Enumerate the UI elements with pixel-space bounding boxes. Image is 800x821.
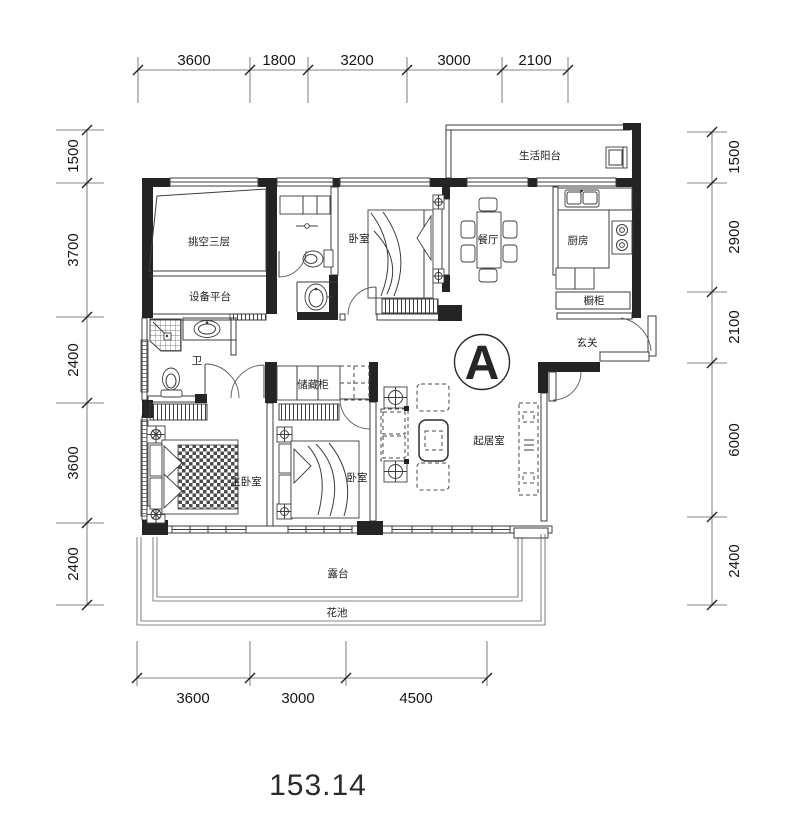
dim-right-4: 6000: [726, 423, 743, 456]
dim-left-2: 3700: [65, 233, 82, 266]
shower-icon: [150, 319, 181, 351]
tv-cabinet: [519, 403, 538, 495]
dim-right-3: 2100: [726, 310, 743, 343]
room-label-cabinet: 橱柜: [584, 294, 605, 307]
dim-top-2: 1800: [262, 52, 295, 69]
void-slab-outline: [149, 189, 266, 276]
room-label-living-room: 起居室: [473, 434, 505, 447]
room-label-storage: 储藏柜: [297, 378, 329, 391]
dim-left-3: 2400: [65, 343, 82, 376]
unit-letter: A: [465, 337, 500, 390]
dimension-chain-top: 3600 1800 3200 3000 2100: [133, 52, 573, 103]
dim-bottom-2: 3000: [281, 690, 314, 707]
dim-bottom-1: 3600: [176, 690, 209, 707]
unit-section-mark: A: [455, 335, 510, 391]
toilet-bath-icon: [161, 368, 182, 397]
stove-icon: [612, 221, 632, 254]
radiator-bedroom2: [279, 404, 339, 420]
toilet-top-icon: [303, 250, 333, 267]
room-label-kitchen: 厨房: [568, 234, 589, 247]
floorplan-page: 3600 1800 3200 3000 2100 1500 3700 2400 …: [0, 0, 800, 821]
washing-machine-icon: [606, 147, 627, 168]
room-label-bedroom-top: 卧室: [349, 232, 370, 245]
washbasin-bath-icon: [183, 318, 236, 340]
room-label-void: 挑空三层: [188, 235, 230, 248]
bed-top-icon: [368, 195, 444, 298]
dim-bottom-3: 4500: [399, 690, 432, 707]
room-label-bedroom-bottom: 卧室: [347, 471, 368, 484]
radiator-master: [150, 404, 207, 420]
room-label-flower-bed: 花池: [327, 606, 348, 619]
dimension-chain-right: 1500 2900 2100 6000 2400: [687, 127, 743, 610]
dim-right-1: 1500: [726, 140, 743, 173]
dim-top-4: 3000: [437, 52, 470, 69]
room-label-living-balcony: 生活阳台: [519, 149, 561, 162]
room-label-terrace: 露台: [328, 567, 349, 580]
room-label-master-bedroom: 主卧室: [230, 475, 262, 488]
dimension-chain-bottom: 3600 3000 4500: [132, 641, 492, 707]
dim-right-2: 2900: [726, 220, 743, 253]
dim-right-5: 2400: [726, 544, 743, 577]
wardrobe-top-bedroom: [382, 299, 438, 313]
room-label-bathroom: 卫: [192, 355, 203, 367]
area-label: 153.14: [269, 769, 367, 802]
coffee-table: [419, 420, 448, 461]
dim-left-4: 3600: [65, 446, 82, 479]
dim-left-1: 1500: [65, 139, 82, 172]
room-label-dining: 餐厅: [478, 233, 499, 246]
dimension-chain-left: 1500 3700 2400 3600 2400: [56, 125, 104, 610]
dim-left-5: 2400: [65, 547, 82, 580]
towel-bar-icon: [296, 224, 318, 229]
dim-top-1: 3600: [177, 52, 210, 69]
dim-top-3: 3200: [340, 52, 373, 69]
room-label-entry: 玄关: [577, 336, 598, 349]
room-label-equipment-platform: 设备平台: [189, 290, 231, 303]
floor-plan-canvas: 3600 1800 3200 3000 2100 1500 3700 2400 …: [0, 0, 800, 821]
bed-master-icon: [147, 426, 238, 523]
closet-shelf: [280, 196, 330, 214]
dim-top-5: 2100: [518, 52, 551, 69]
kitchen-sink-icon: [565, 190, 599, 207]
